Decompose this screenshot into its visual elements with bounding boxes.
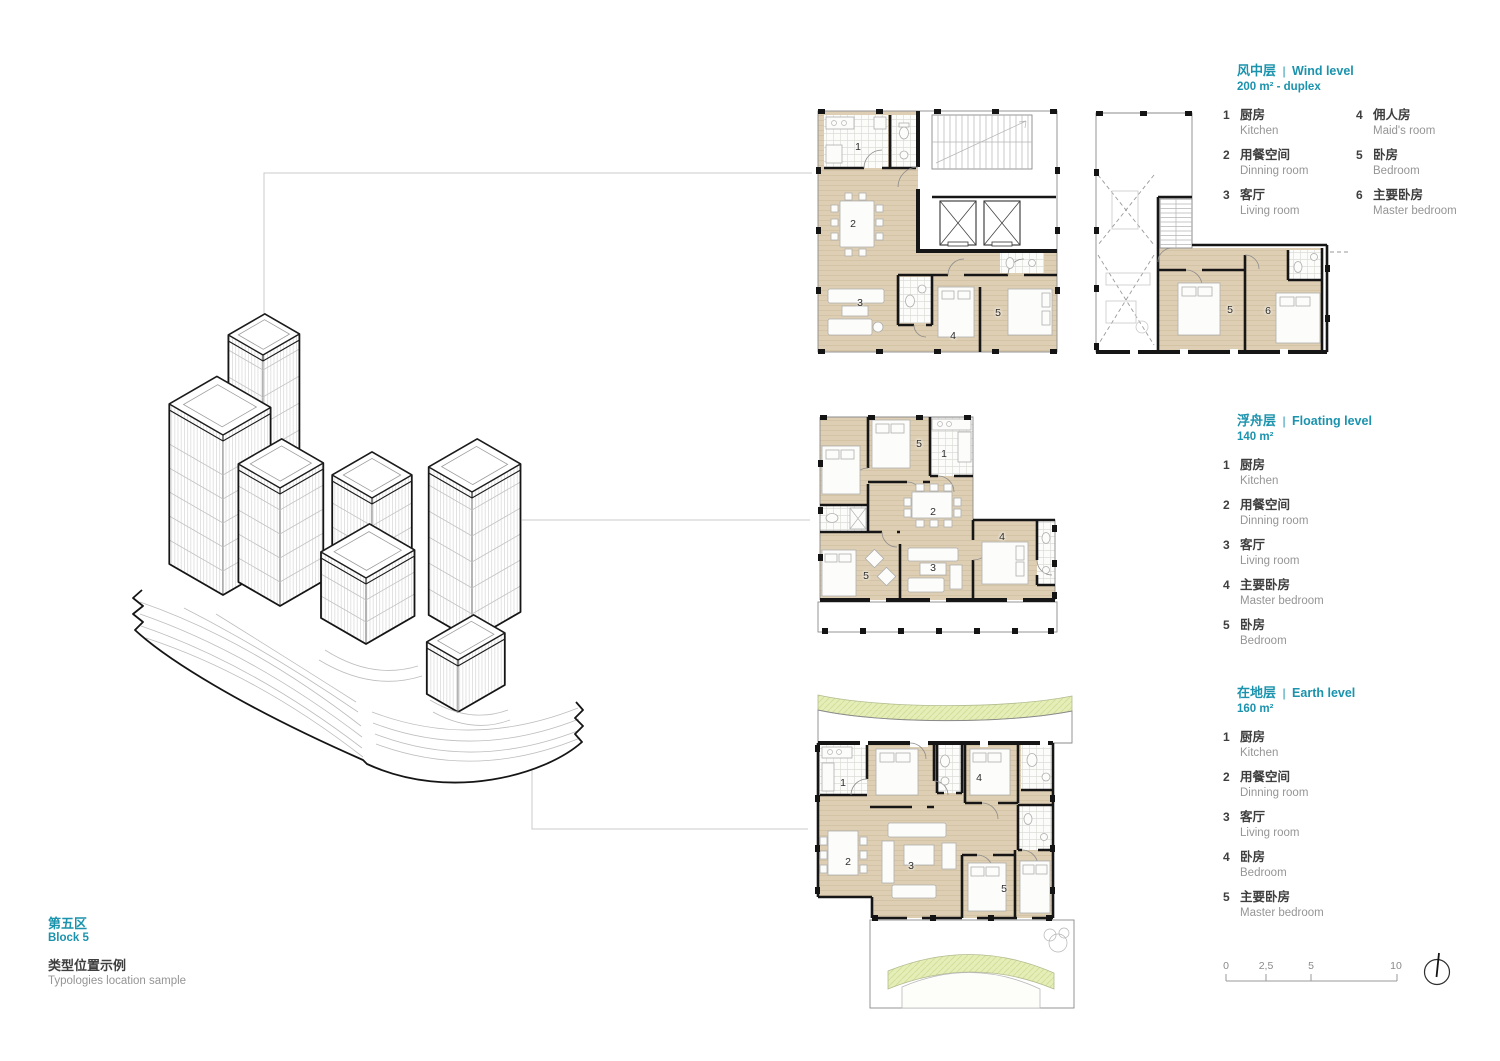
legend-floating-level: 浮舟层 | Floating level 140 m² 1厨房Kitchen 2… — [1223, 413, 1473, 658]
legend-item-zh: 客厅 — [1240, 188, 1299, 202]
block-name-zh: 第五区 — [48, 916, 186, 931]
scale-bar — [1226, 974, 1397, 981]
legend-item-en: Living room — [1240, 204, 1299, 218]
north-indicator — [1425, 953, 1450, 985]
room-number: 3 — [908, 860, 914, 872]
room-number: 6 — [1265, 305, 1271, 317]
legend-item-en: Bedroom — [1240, 634, 1287, 648]
legend-item: 5卧房Bedroom — [1356, 148, 1489, 178]
legend-title-zh: 在地层 — [1237, 685, 1276, 700]
floor-plan-floating-level — [818, 415, 1057, 634]
room-number: 5 — [1001, 883, 1007, 895]
legend-item: 1厨房Kitchen — [1223, 458, 1356, 488]
plant-drawing — [1044, 928, 1069, 952]
legend-title-separator: | — [1282, 414, 1285, 428]
legend-item: 4佣人房Maid's room — [1356, 108, 1489, 138]
legend-item: 6主要卧房Master bedroom — [1356, 188, 1489, 218]
legend-item-number: 3 — [1223, 810, 1240, 840]
room-number: 5 — [995, 307, 1001, 319]
legend-item-zh: 厨房 — [1240, 458, 1278, 472]
legend-item-zh: 用餐空间 — [1240, 148, 1308, 162]
legend-item-en: Master bedroom — [1240, 594, 1324, 608]
legend-item: 1厨房Kitchen — [1223, 108, 1356, 138]
legend-item: 4主要卧房Master bedroom — [1223, 578, 1356, 608]
legend-item-number: 2 — [1223, 148, 1240, 178]
legend-item-number: 5 — [1223, 890, 1240, 920]
legend-item: 3客厅Living room — [1223, 538, 1356, 568]
scale-tick-label: 10 — [1390, 960, 1402, 972]
legend-item: 2用餐空间Dinning room — [1223, 148, 1356, 178]
room-number: 1 — [855, 141, 861, 153]
room-number: 4 — [999, 531, 1005, 543]
legend-item-en: Master bedroom — [1240, 906, 1324, 920]
tower — [238, 439, 323, 606]
sheet-subtitle-en: Typologies location sample — [48, 974, 186, 989]
legend-header: 浮舟层 | Floating level 140 m² — [1223, 413, 1473, 445]
block-name-en: Block 5 — [48, 931, 186, 946]
room-number: 1 — [941, 448, 947, 460]
legend-item-number: 4 — [1223, 850, 1240, 880]
legend-item: 3客厅Living room — [1223, 188, 1356, 218]
legend-item: 4卧房Bedroom — [1223, 850, 1356, 880]
legend-header: 在地层 | Earth level 160 m² — [1223, 685, 1473, 717]
legend-item-en: Dinning room — [1240, 786, 1308, 800]
room-number: 3 — [857, 297, 863, 309]
legend-wind-level: 风中层 | Wind level 200 m² - duplex 1厨房Kitc… — [1223, 63, 1473, 228]
legend-earth-level: 在地层 | Earth level 160 m² 1厨房Kitchen 2用餐空… — [1223, 685, 1473, 930]
legend-item-number: 3 — [1223, 188, 1240, 218]
room-number: 3 — [930, 562, 936, 574]
room-number: 5 — [863, 570, 869, 582]
legend-title-zh: 浮舟层 — [1237, 413, 1276, 428]
legend-header: 风中层 | Wind level 200 m² - duplex — [1223, 63, 1473, 95]
legend-area-label: 140 m² — [1237, 430, 1473, 445]
legend-item-zh: 卧房 — [1240, 618, 1287, 632]
legend-item-number: 2 — [1223, 770, 1240, 800]
legend-item-zh: 卧房 — [1240, 850, 1287, 864]
room-number: 5 — [1227, 304, 1233, 316]
scale-tick-label: 5 — [1308, 960, 1314, 972]
legend-title-separator: | — [1282, 64, 1285, 78]
legend-item: 5卧房Bedroom — [1223, 618, 1356, 648]
architectural-sheet: 1 2 3 4 5 5 6 5 1 2 3 4 5 1 4 2 3 5 风中层 … — [0, 0, 1500, 1061]
legend-item-zh: 主要卧房 — [1240, 578, 1324, 592]
legend-item-zh: 用餐空间 — [1240, 770, 1308, 784]
legend-item-zh: 用餐空间 — [1240, 498, 1308, 512]
legend-item-en: Kitchen — [1240, 474, 1278, 488]
legend-area-label: 200 m² - duplex — [1237, 80, 1473, 95]
legend-item-number: 2 — [1223, 498, 1240, 528]
room-number: 1 — [840, 777, 846, 789]
legend-item-en: Maid's room — [1373, 124, 1435, 138]
legend-item-en: Kitchen — [1240, 746, 1278, 760]
legend-item-zh: 客厅 — [1240, 538, 1299, 552]
room-number: 4 — [976, 772, 982, 784]
legend-item-number: 5 — [1223, 618, 1240, 648]
legend-item-zh: 主要卧房 — [1240, 890, 1324, 904]
legend-item-number: 6 — [1356, 188, 1373, 218]
scale-tick-label: 2,5 — [1259, 960, 1274, 972]
legend-item-number: 1 — [1223, 108, 1240, 138]
sheet-subtitle-zh: 类型位置示例 — [48, 958, 186, 973]
legend-item-zh: 客厅 — [1240, 810, 1299, 824]
legend-title-en: Wind level — [1292, 64, 1354, 78]
legend-item: 2用餐空间Dinning room — [1223, 770, 1356, 800]
legend-item: 2用餐空间Dinning room — [1223, 498, 1356, 528]
legend-item-en: Living room — [1240, 554, 1299, 568]
legend-item-number: 5 — [1356, 148, 1373, 178]
tower — [429, 439, 521, 640]
room-number: 2 — [850, 218, 856, 230]
legend-title-zh: 风中层 — [1237, 63, 1276, 78]
legend-item-en: Dinning room — [1240, 514, 1308, 528]
legend-item-en: Master bedroom — [1373, 204, 1457, 218]
legend-item-number: 1 — [1223, 458, 1240, 488]
legend-item: 1厨房Kitchen — [1223, 730, 1356, 760]
scale-tick-label: 0 — [1223, 960, 1229, 972]
legend-item-en: Dinning room — [1240, 164, 1308, 178]
room-number: 4 — [950, 330, 956, 342]
legend-item-zh: 厨房 — [1240, 730, 1278, 744]
legend-item-zh: 主要卧房 — [1373, 188, 1457, 202]
legend-item-en: Bedroom — [1373, 164, 1420, 178]
legend-item: 5主要卧房Master bedroom — [1223, 890, 1356, 920]
room-number: 2 — [930, 506, 936, 518]
room-number: 5 — [916, 438, 922, 450]
isometric-building-drawing — [133, 314, 583, 783]
legend-item-number: 1 — [1223, 730, 1240, 760]
legend-item-number: 3 — [1223, 538, 1240, 568]
legend-item-zh: 佣人房 — [1373, 108, 1435, 122]
sheet-title-block: 第五区 Block 5 类型位置示例 Typologies location s… — [48, 916, 186, 989]
legend-item-number: 4 — [1356, 108, 1373, 138]
legend-item-en: Bedroom — [1240, 866, 1287, 880]
legend-item-zh: 卧房 — [1373, 148, 1420, 162]
room-number: 2 — [845, 856, 851, 868]
legend-item-en: Kitchen — [1240, 124, 1278, 138]
legend-item-en: Living room — [1240, 826, 1299, 840]
legend-title-en: Floating level — [1292, 414, 1372, 428]
legend-title-en: Earth level — [1292, 686, 1355, 700]
legend-area-label: 160 m² — [1237, 702, 1473, 717]
legend-item: 3客厅Living room — [1223, 810, 1356, 840]
legend-title-separator: | — [1282, 686, 1285, 700]
floor-plan-wind-level-lower — [816, 109, 1060, 354]
legend-item-number: 4 — [1223, 578, 1240, 608]
legend-item-zh: 厨房 — [1240, 108, 1278, 122]
floor-plan-earth-level — [815, 695, 1074, 1008]
